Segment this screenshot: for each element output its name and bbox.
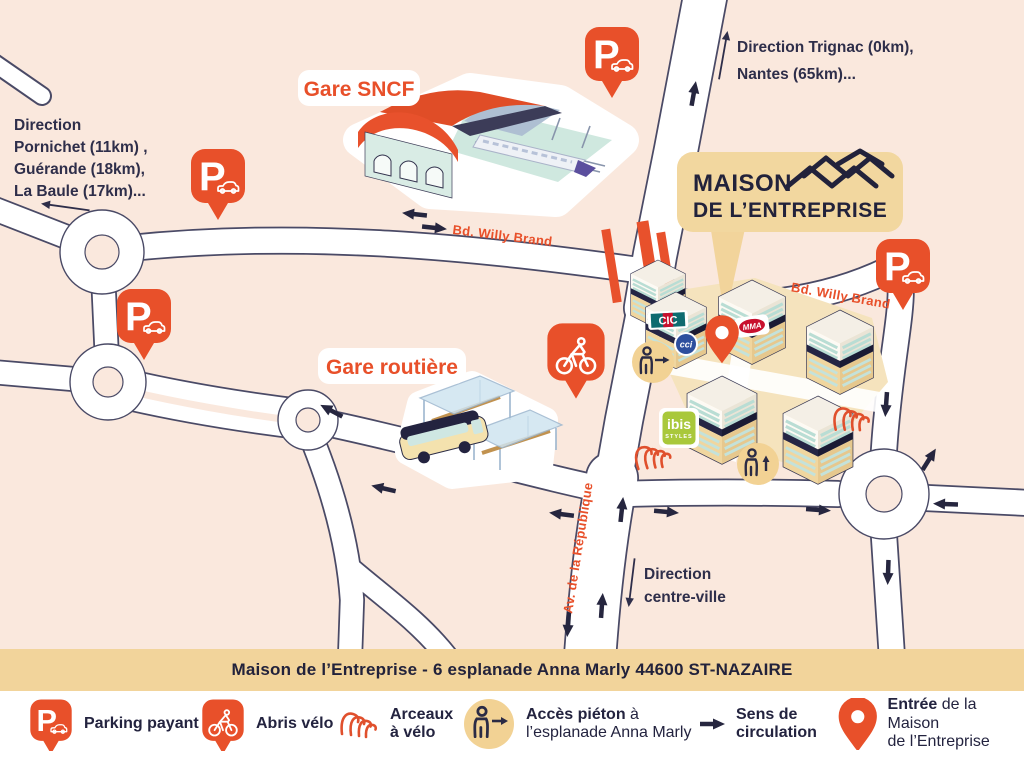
gare-sncf-label: Gare SNCF	[298, 70, 420, 106]
legend-label-abris-velo: Abris vélo	[256, 715, 333, 733]
parking-pin-icon: P	[28, 697, 74, 751]
ibis-styles-logo: ibis STYLES	[659, 408, 699, 448]
svg-text:Direction: Direction	[644, 566, 711, 583]
legend-label-entree: Entrée de la Maison de l’Entreprise	[888, 696, 1024, 751]
bike-shelter-pin-icon	[200, 697, 246, 751]
legend-label-parking: Parking payant	[84, 715, 199, 733]
legend-item-arceaux: Arceaux à vélo	[338, 691, 453, 757]
address-text: Maison de l’Entreprise - 6 esplanade Ann…	[231, 660, 792, 680]
access-map-page: CIC cci MMA ibis STYLES	[0, 0, 1024, 757]
legend: P Parking payant Abris vélo Arceaux à vé…	[0, 691, 1024, 757]
svg-text:La Baule (17km)...: La Baule (17km)...	[14, 183, 146, 200]
building	[807, 310, 874, 394]
map-canvas: CIC cci MMA ibis STYLES	[0, 0, 1024, 650]
entrance-pin-icon	[838, 698, 878, 750]
svg-text:Gare SNCF: Gare SNCF	[304, 78, 415, 101]
pedestrian-access-badge	[632, 341, 674, 383]
ibis-styles-text: STYLES	[665, 434, 692, 440]
cci-logo: cci	[674, 332, 698, 356]
pedestrian-access-icon	[462, 697, 516, 751]
svg-text:Guérande (18km),: Guérande (18km),	[14, 161, 145, 178]
maison-entreprise-logo: MAISON DE L’ENTREPRISE	[677, 151, 903, 232]
legend-label-sens-circulation: Sens de circulation	[736, 706, 817, 743]
ibis-logo-text: ibis	[667, 416, 691, 432]
gare-routiere-label: Gare routière	[318, 348, 466, 384]
legend-item-parking: P Parking payant	[28, 691, 199, 757]
svg-text:Direction Trignac (0km),: Direction Trignac (0km),	[737, 39, 914, 56]
train-station-illustration	[358, 90, 622, 200]
svg-text:Direction: Direction	[14, 117, 81, 134]
cic-logo: CIC	[648, 310, 689, 330]
legend-label-acces-pieton: Accès piéton à l’esplanade Anna Marly	[526, 706, 691, 743]
legend-item-entree: Entrée de la Maison de l’Entreprise	[838, 691, 1024, 757]
logo-line-1: MAISON	[693, 170, 792, 197]
cic-logo-text: CIC	[658, 315, 678, 328]
cci-logo-text: cci	[680, 340, 693, 350]
legend-item-acces-pieton: Accès piéton à l’esplanade Anna Marly	[462, 691, 691, 757]
legend-label-arceaux: Arceaux à vélo	[390, 706, 453, 743]
svg-text:Gare routière: Gare routière	[326, 356, 458, 379]
map-svg: CIC cci MMA ibis STYLES	[0, 0, 1024, 650]
address-banner: Maison de l’Entreprise - 6 esplanade Ann…	[0, 649, 1024, 691]
direction-arrow-icon	[692, 714, 726, 734]
entrance-pin-dot	[715, 326, 728, 339]
bike-racks-icon	[338, 704, 380, 744]
legend-item-abris-velo: Abris vélo	[200, 691, 333, 757]
svg-text:Nantes (65km)...: Nantes (65km)...	[737, 66, 856, 83]
logo-line-2: DE L’ENTREPRISE	[693, 199, 887, 222]
svg-text:centre-ville: centre-ville	[644, 589, 726, 606]
legend-item-sens-circulation: Sens de circulation	[692, 691, 817, 757]
pedestrian-access-badge	[737, 443, 779, 485]
svg-text:Pornichet (11km) ,: Pornichet (11km) ,	[14, 139, 148, 156]
